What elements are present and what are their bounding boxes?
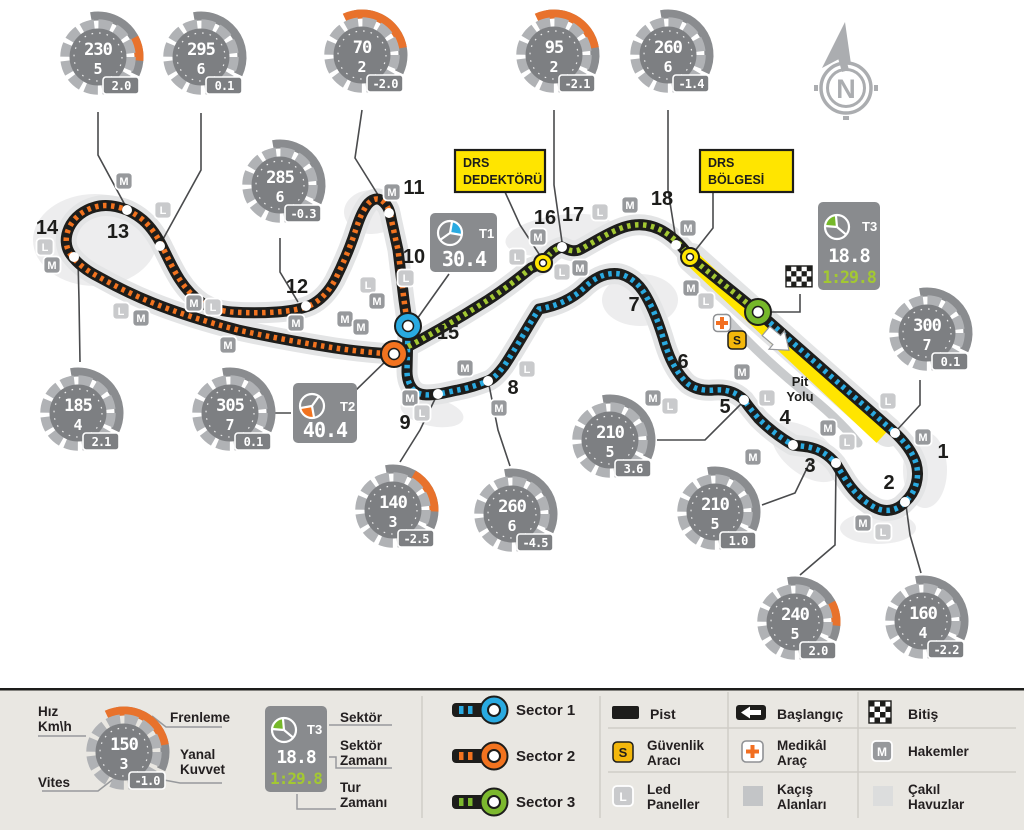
svg-text:M: M <box>291 318 300 330</box>
apex-dot <box>739 395 749 405</box>
legend-sector3-label: Sector 3 <box>516 794 575 811</box>
gauge-gforce: 3.6 <box>624 462 643 476</box>
gauge-gforce: -2.5 <box>404 532 430 546</box>
compass-letter: N <box>836 74 856 104</box>
gauge-speed: 70 <box>353 38 372 58</box>
legend-start-label: Başlangıç <box>777 706 843 722</box>
gauge-speed: 185 <box>64 396 92 416</box>
apex-dot <box>155 241 165 251</box>
gauge-gforce: 0.1 <box>941 355 960 369</box>
legend-speed-label1: Hız <box>38 704 59 719</box>
finish-flag-icon <box>786 266 812 287</box>
led-panel-badge: L <box>698 293 715 310</box>
gauge-gear: 5 <box>605 443 614 461</box>
marshal-badge: M <box>457 360 474 377</box>
runoff-swatch-icon <box>743 786 763 806</box>
drs-detector-box: DRS DEDEKTÖRÜ <box>455 150 545 192</box>
svg-text:S: S <box>619 745 628 760</box>
svg-text:M: M <box>372 296 381 308</box>
apex-dot <box>433 389 443 399</box>
svg-text:M: M <box>533 232 542 244</box>
track-swatch-icon <box>612 706 639 719</box>
marshal-badge: M <box>645 390 662 407</box>
drs-zone-box: DRS BÖLGESİ <box>700 150 793 192</box>
gauge-gforce: 1.0 <box>729 534 748 548</box>
gauge-gear: 7 <box>922 336 931 354</box>
gauge-speed: 260 <box>498 497 526 517</box>
svg-text:M: M <box>405 393 414 405</box>
legend-runoff-label2: Alanları <box>777 797 827 812</box>
gauge-gear: 6 <box>663 58 672 76</box>
finish-flag-icon <box>869 701 891 723</box>
svg-text:M: M <box>737 367 746 379</box>
drs-detector-line2: DEDEKTÖRÜ <box>463 172 542 187</box>
led-panel-badge: L <box>398 270 415 287</box>
svg-text:L: L <box>559 267 566 279</box>
gauge-speed: 210 <box>596 423 624 443</box>
gauge-gforce: 2.1 <box>92 435 111 449</box>
gauge-gforce: -0.3 <box>291 207 317 221</box>
led-panel-badge: L <box>37 239 54 256</box>
gauge-gear: 3 <box>119 755 128 773</box>
corner-number: 3 <box>804 455 815 477</box>
medical-car-icon <box>742 741 763 762</box>
svg-text:L: L <box>597 207 604 219</box>
gauge-gear: 3 <box>388 513 397 531</box>
corner-number: 12 <box>286 276 308 298</box>
marshal-badge: M <box>572 260 589 277</box>
legend-gravel-label2: Havuzlar <box>908 797 965 812</box>
apex-dot <box>557 242 567 252</box>
gauge-speed: 95 <box>545 38 564 58</box>
led-panel-badge: L <box>759 390 776 407</box>
legend-t3-label: T3 <box>307 722 322 737</box>
page: MLLMMMMLLMLMMLMMMLMLMLMLMLMMMLMLMLLMMLML… <box>0 0 1024 830</box>
legend-medical-label2: Araç <box>777 753 808 768</box>
legend-safety-label1: Güvenlik <box>647 738 705 753</box>
gauge-speed: 300 <box>913 316 941 336</box>
marshal-badge: M <box>288 315 305 332</box>
svg-text:L: L <box>524 364 531 376</box>
svg-text:L: L <box>514 252 521 264</box>
led-panel-badge: L <box>155 202 172 219</box>
corner-number: 13 <box>107 221 129 243</box>
apex-dot <box>384 208 394 218</box>
svg-text:L: L <box>160 205 167 217</box>
medical-car-badge <box>714 315 731 332</box>
marshal-badge: M <box>622 197 639 214</box>
apex-dot <box>900 497 910 507</box>
corner-number: 10 <box>403 246 425 268</box>
svg-text:L: L <box>619 790 626 804</box>
led-panel-badge: L <box>414 405 431 422</box>
svg-text:M: M <box>356 322 365 334</box>
pit-label-line1: Pit <box>792 374 809 389</box>
corner-number: 7 <box>628 294 639 316</box>
led-panel-badge: L <box>839 434 856 451</box>
gauge-speed: 140 <box>379 493 407 513</box>
gauge-gear: 7 <box>225 416 234 434</box>
marshal-badge: M <box>44 257 61 274</box>
gauge-speed: 160 <box>909 604 937 624</box>
legend-sector-box: T3 18.8 1:29.8 <box>265 706 327 792</box>
led-panel-badge: L <box>592 204 609 221</box>
marshal-badge: M <box>745 449 762 466</box>
legend-gravel-label1: Çakıl <box>908 782 940 797</box>
svg-text:L: L <box>403 273 410 285</box>
svg-text:M: M <box>136 313 145 325</box>
t3-label: T3 <box>862 219 877 234</box>
corner-number: 14 <box>36 217 59 239</box>
apex-dot <box>890 428 900 438</box>
gauge-gforce: 0.1 <box>215 79 234 93</box>
led-panel-badge: L <box>875 524 892 541</box>
gauge-speed: 150 <box>110 735 138 755</box>
apex-dot <box>122 205 132 215</box>
svg-text:M: M <box>223 340 232 352</box>
legend-lap-time-label2: Zamanı <box>340 795 387 810</box>
marshal-badge: M <box>337 311 354 328</box>
pit-label-line2: Yolu <box>786 389 813 404</box>
svg-text:M: M <box>119 176 128 188</box>
svg-text:M: M <box>686 283 695 295</box>
circuit-infographic: MLLMMMMLLMLMMLMMMLMLMLMLMLMMMLMLMLLMMLML… <box>0 0 1024 830</box>
gauge-gforce: -4.5 <box>523 536 549 550</box>
led-panel-badge: L <box>519 361 536 378</box>
gauge-speed: 230 <box>84 40 112 60</box>
gauge-gear: 4 <box>73 416 82 434</box>
corner-number: 17 <box>562 204 584 226</box>
gauge-gforce: -2.0 <box>373 77 399 91</box>
legend-lateral-label2: Kuvvet <box>180 762 226 777</box>
gauge-gforce: 0.1 <box>244 435 263 449</box>
apex-dot <box>788 440 798 450</box>
marshal-badge: M <box>820 420 837 437</box>
corner-number: 4 <box>779 407 791 429</box>
gauge-gear: 5 <box>93 60 102 78</box>
gauge-gforce: 2.0 <box>112 79 131 93</box>
marshal-badge: M <box>530 229 547 246</box>
corner-number: 9 <box>399 412 410 434</box>
gauge-gear: 2 <box>549 58 558 76</box>
svg-text:M: M <box>683 223 692 235</box>
safety-car-badge: S <box>728 331 746 349</box>
legend-gear-label: Vites <box>38 775 70 790</box>
led-panel-badge: L <box>360 277 377 294</box>
legend-finish-label: Bitiş <box>908 706 939 722</box>
svg-text:L: L <box>667 401 674 413</box>
gauge-speed: 240 <box>781 605 809 625</box>
marshal-badge: M <box>369 293 386 310</box>
led-panel-badge: L <box>554 264 571 281</box>
svg-text:L: L <box>365 280 372 292</box>
corner-number: 8 <box>507 377 518 399</box>
legend-led-label1: Led <box>647 782 671 797</box>
corner-number: 15 <box>437 322 459 344</box>
drs-zone-line1: DRS <box>708 156 734 170</box>
svg-text:L: L <box>880 527 887 539</box>
legend-safety-label2: Aracı <box>647 753 681 768</box>
drs-zone-line2: BÖLGESİ <box>708 172 764 187</box>
legend-lap-time-label1: Tur <box>340 780 361 795</box>
corner-number: 1 <box>937 441 948 463</box>
led-panel-badge: L <box>509 249 526 266</box>
legend-led-label2: Paneller <box>647 797 700 812</box>
legend-t3-sector-time: 18.8 <box>276 747 316 768</box>
led-panel-badge: L <box>662 398 679 415</box>
svg-text:M: M <box>387 187 396 199</box>
svg-text:M: M <box>189 298 198 310</box>
corner-number: 2 <box>883 472 894 494</box>
led-panel-badge: L <box>880 393 897 410</box>
gauge-gear: 5 <box>790 625 799 643</box>
svg-text:M: M <box>494 403 503 415</box>
marshal-badge: M <box>734 364 751 381</box>
legend-brake-label: Frenleme <box>170 710 231 725</box>
gauge-speed: 210 <box>701 495 729 515</box>
svg-text:M: M <box>823 423 832 435</box>
corner-number: 6 <box>677 351 688 373</box>
sector3-time-box: T3 18.8 1:29.8 <box>818 202 880 290</box>
corner-number: 16 <box>534 207 556 229</box>
svg-text:M: M <box>858 518 867 530</box>
svg-text:M: M <box>460 363 469 375</box>
marshal-badge: M <box>133 310 150 327</box>
corner-number: 11 <box>403 177 424 199</box>
gauge-gforce: 2.0 <box>809 644 828 658</box>
gauge-speed: 260 <box>654 38 682 58</box>
marshal-badge: M <box>384 184 401 201</box>
gauge-gear: 6 <box>196 60 205 78</box>
led-panel-badge: L <box>205 299 222 316</box>
gauge-speed: 295 <box>187 40 215 60</box>
drs-detector-line1: DRS <box>463 156 489 170</box>
svg-text:L: L <box>885 396 892 408</box>
legend-marshals-label: Hakemler <box>908 744 970 759</box>
legend-lateral-label1: Yanal <box>180 747 215 762</box>
svg-text:L: L <box>844 437 851 449</box>
gauge-gear: 5 <box>710 515 719 533</box>
apex-dot <box>831 458 841 468</box>
gauge-gear: 6 <box>275 188 284 206</box>
marshal-icon: M <box>872 741 892 761</box>
corner-number: 5 <box>719 396 730 418</box>
t2-time: 40.4 <box>303 418 348 442</box>
apex-dot <box>671 240 681 250</box>
svg-text:M: M <box>918 432 927 444</box>
svg-text:S: S <box>733 334 741 348</box>
t1-time: 30.4 <box>442 247 487 271</box>
svg-text:M: M <box>625 200 634 212</box>
legend-sector-time-label1: Sektör <box>340 738 383 753</box>
gauge-gforce: -1.4 <box>679 77 705 91</box>
legend-sector1-label: Sector 1 <box>516 702 575 719</box>
led-panel-badge: L <box>113 303 130 320</box>
sector1-time-box: T1 30.4 <box>430 213 497 272</box>
corner-number: 18 <box>651 188 673 210</box>
legend-sector-time-label2: Zamanı <box>340 753 387 768</box>
marshal-badge: M <box>220 337 237 354</box>
apex-dot <box>69 252 79 262</box>
marshal-badge: M <box>915 429 932 446</box>
svg-text:M: M <box>877 745 887 759</box>
t3-lap-time: 1:29.8 <box>822 268 876 287</box>
marshal-badge: M <box>683 280 700 297</box>
gauge-speed: 305 <box>216 396 244 416</box>
gauge-gforce: -1.0 <box>135 774 161 788</box>
svg-text:M: M <box>340 314 349 326</box>
marshal-badge: M <box>491 400 508 417</box>
svg-text:M: M <box>648 393 657 405</box>
led-panel-icon: L <box>613 786 633 806</box>
gravel-swatch-icon <box>873 786 893 806</box>
marshal-badge: M <box>855 515 872 532</box>
svg-text:L: L <box>210 302 217 314</box>
gauge-gear: 4 <box>918 624 927 642</box>
svg-text:L: L <box>118 306 125 318</box>
svg-text:M: M <box>748 452 757 464</box>
apex-dot <box>301 301 311 311</box>
marshal-badge: M <box>186 295 203 312</box>
gauge-gforce: -2.1 <box>565 77 591 91</box>
t3-sector-time: 18.8 <box>828 245 870 267</box>
apex-dot <box>483 376 493 386</box>
legend-speed-label2: Km\h <box>38 719 72 734</box>
legend-runoff-label1: Kaçış <box>777 782 813 797</box>
sector2-time-box: T2 40.4 <box>293 383 357 443</box>
marshal-badge: M <box>680 220 697 237</box>
gauge-gforce: -2.2 <box>934 643 960 657</box>
marshal-badge: M <box>116 173 133 190</box>
legend-medical-label1: Medikâl <box>777 738 827 753</box>
t2-label: T2 <box>340 399 355 414</box>
start-icon <box>736 705 766 720</box>
legend-t3-lap-time: 1:29.8 <box>270 769 322 788</box>
t1-label: T1 <box>479 226 494 241</box>
legend-track-label: Pist <box>650 706 676 722</box>
gauge-gear: 6 <box>507 517 516 535</box>
svg-text:M: M <box>575 263 584 275</box>
svg-text:M: M <box>47 260 56 272</box>
svg-text:L: L <box>419 408 426 420</box>
gauge-speed: 285 <box>266 168 294 188</box>
gauge-gear: 2 <box>357 58 366 76</box>
svg-text:L: L <box>703 296 710 308</box>
legend-sector-label: Sektör <box>340 710 383 725</box>
svg-text:L: L <box>42 242 49 254</box>
marshal-badge: M <box>353 319 370 336</box>
safety-car-icon: S <box>613 742 633 762</box>
legend-sector2-label: Sector 2 <box>516 748 575 765</box>
svg-text:L: L <box>764 393 771 405</box>
